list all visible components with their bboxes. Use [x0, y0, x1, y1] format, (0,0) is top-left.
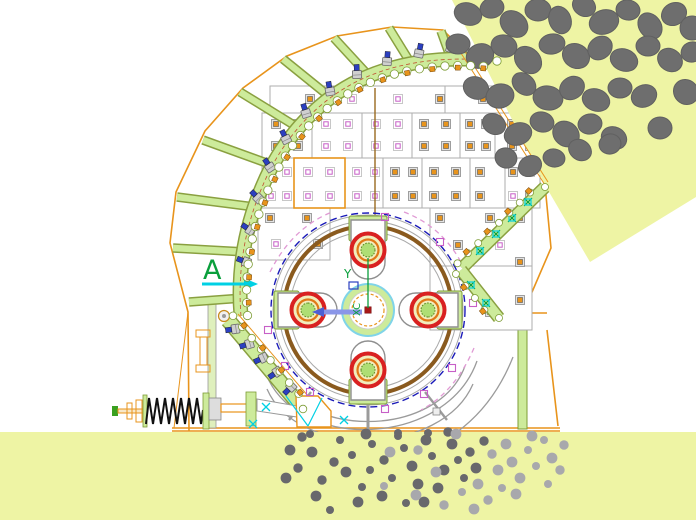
bolt-marker: [452, 168, 461, 177]
liner-tooth: [323, 104, 331, 112]
particle: [515, 473, 526, 484]
liner-tooth: [288, 141, 296, 149]
bolt-marker: [372, 142, 381, 151]
bolt-marker: [266, 214, 275, 223]
particle: [407, 461, 418, 472]
liner-tooth: [493, 57, 501, 65]
rock: [525, 0, 551, 21]
bolt-marker: [409, 192, 418, 201]
liner-tooth: [496, 219, 503, 226]
bolt-marker: [436, 95, 445, 104]
particle: [501, 439, 512, 450]
liner-tooth: [441, 62, 449, 70]
particle: [293, 463, 302, 472]
particle: [348, 451, 356, 459]
particle: [394, 429, 402, 437]
particle: [297, 432, 306, 441]
y-axis-label: Y: [343, 267, 352, 281]
bolt-marker: [394, 95, 403, 104]
rock: [608, 78, 632, 98]
tooth-bolt: [249, 249, 255, 255]
liner-tooth: [454, 260, 461, 267]
particle: [326, 506, 334, 514]
particle: [353, 497, 364, 508]
particle: [454, 456, 462, 464]
particle: [307, 447, 318, 458]
liner-tooth: [248, 235, 256, 243]
deflector-bolt: [476, 247, 484, 255]
liner-tooth: [390, 70, 398, 78]
particle: [458, 488, 466, 496]
particle: [460, 474, 468, 482]
bolt-marker: [304, 192, 313, 201]
particle: [469, 504, 480, 515]
bolt-marker: [509, 192, 518, 201]
bolt-marker: [394, 142, 403, 151]
liner-tooth: [299, 405, 307, 413]
bolt-marker: [283, 192, 292, 201]
right-support-strut: [518, 315, 527, 429]
bolt-marker: [283, 168, 292, 177]
liner-tooth: [264, 186, 272, 194]
particle: [498, 484, 506, 492]
bolt-marker: [372, 120, 381, 129]
particle: [400, 444, 408, 452]
particle: [540, 436, 548, 444]
bolt-marker: [509, 168, 518, 177]
bolt-marker: [430, 192, 439, 201]
liner-bolt: [382, 51, 392, 66]
bolt-marker: [304, 168, 313, 177]
particle: [447, 439, 458, 450]
bolt-marker: [486, 214, 495, 223]
bolt-marker: [326, 192, 335, 201]
bolt-marker: [322, 120, 331, 129]
particle: [544, 480, 552, 488]
bolt-marker: [516, 296, 525, 305]
particle: [361, 429, 372, 440]
particle: [532, 462, 540, 470]
particle: [507, 457, 518, 468]
particle: [402, 499, 410, 507]
particle: [285, 445, 296, 456]
liner-tooth: [248, 334, 256, 342]
liner-tooth: [415, 65, 423, 73]
bolt-marker: [326, 168, 335, 177]
tooth-bolt: [246, 300, 251, 305]
liner-tooth: [243, 311, 251, 319]
particle: [411, 490, 422, 501]
bolt-marker: [353, 168, 362, 177]
particle: [379, 455, 388, 464]
liner-tooth: [244, 260, 252, 268]
rock: [636, 36, 660, 56]
particle: [451, 429, 462, 440]
particle: [511, 489, 522, 500]
rock: [648, 117, 672, 139]
particle: [377, 491, 388, 502]
bolt-marker: [436, 214, 445, 223]
particle: [559, 440, 568, 449]
hammer-assembly: [349, 341, 387, 404]
liner-tooth: [229, 312, 237, 320]
particle: [281, 473, 292, 484]
liner-tooth: [516, 199, 523, 206]
liner-tooth: [366, 78, 374, 86]
liner-tooth: [255, 210, 263, 218]
tooth-bolt: [430, 66, 435, 71]
bolt-marker: [466, 142, 475, 151]
bolt-marker: [409, 168, 418, 177]
section-label-a: A: [203, 255, 222, 286]
particle: [358, 483, 366, 491]
bolt-marker: [430, 168, 439, 177]
deflector-bolt: [482, 299, 490, 307]
liner-tooth: [471, 295, 478, 302]
rock: [446, 34, 470, 54]
hidden-bolt-marker: [449, 365, 456, 372]
liner-tooth: [466, 61, 474, 69]
bolt-marker: [303, 214, 312, 223]
bolt-marker: [394, 120, 403, 129]
particle: [413, 445, 422, 454]
particle: [424, 429, 432, 437]
cad-canvas: Y XC: [0, 0, 696, 520]
particle: [388, 474, 396, 482]
bolt-marker: [466, 120, 475, 129]
bolt-marker: [353, 192, 362, 201]
rod-tip: [112, 406, 118, 416]
bolt-marker: [322, 142, 331, 151]
bolt-marker: [442, 142, 451, 151]
liner-tooth: [452, 271, 459, 278]
bolt-marker: [442, 120, 451, 129]
particle: [431, 467, 442, 478]
particle: [341, 467, 352, 478]
tooth-bolt: [481, 66, 486, 71]
liner-tooth: [275, 163, 283, 171]
bolt-marker: [420, 120, 429, 129]
liner-tooth: [475, 240, 482, 247]
particle: [439, 500, 448, 509]
particle: [413, 479, 424, 490]
particle: [487, 449, 496, 458]
tooth-bolt: [254, 224, 260, 230]
particle: [465, 447, 474, 456]
particle: [524, 446, 532, 454]
deflector-bolt: [524, 198, 532, 206]
hammer-assembly: [399, 291, 462, 329]
particle: [366, 466, 374, 474]
bolt-marker: [454, 241, 463, 250]
bolt-marker: [272, 240, 281, 249]
particle: [317, 475, 326, 484]
bolt-marker: [391, 192, 400, 201]
bolt-marker: [482, 142, 491, 151]
x-axis-label: XC: [352, 303, 363, 316]
particle: [473, 479, 484, 490]
particle: [336, 436, 344, 444]
particle: [493, 465, 504, 476]
particle: [471, 463, 482, 474]
particle: [385, 447, 396, 458]
tooth-bolt: [246, 275, 251, 280]
particle: [433, 483, 444, 494]
particle: [479, 436, 488, 445]
particle: [547, 453, 558, 464]
liner-tooth: [542, 184, 549, 191]
bolt-marker: [476, 192, 485, 201]
tooth-bolt: [455, 65, 460, 70]
bolt-marker: [344, 120, 353, 129]
bolt-marker: [420, 142, 429, 151]
liner-tooth: [496, 315, 503, 322]
liner-tooth: [305, 122, 313, 130]
bolt-marker: [476, 168, 485, 177]
particle: [311, 491, 322, 502]
particle: [306, 430, 314, 438]
tooth-bolt: [404, 70, 410, 76]
crusher-section-drawing: Y XC: [0, 0, 696, 520]
liner-bolt: [324, 81, 335, 96]
hidden-bolt-marker: [265, 327, 272, 334]
particle: [483, 495, 492, 504]
particle: [555, 465, 564, 474]
particle: [428, 452, 436, 460]
particle: [380, 482, 388, 490]
particle: [368, 440, 376, 448]
bolt-marker: [391, 168, 400, 177]
liner-tooth: [285, 379, 293, 387]
bolt-marker: [452, 192, 461, 201]
bolt-marker: [344, 142, 353, 151]
bolt-marker: [516, 258, 525, 267]
particle: [527, 431, 538, 442]
liner-tooth: [344, 90, 352, 98]
particle: [329, 457, 338, 466]
liner-tooth: [267, 357, 275, 365]
liner-tooth: [242, 286, 250, 294]
deflector-bolt: [492, 230, 500, 238]
